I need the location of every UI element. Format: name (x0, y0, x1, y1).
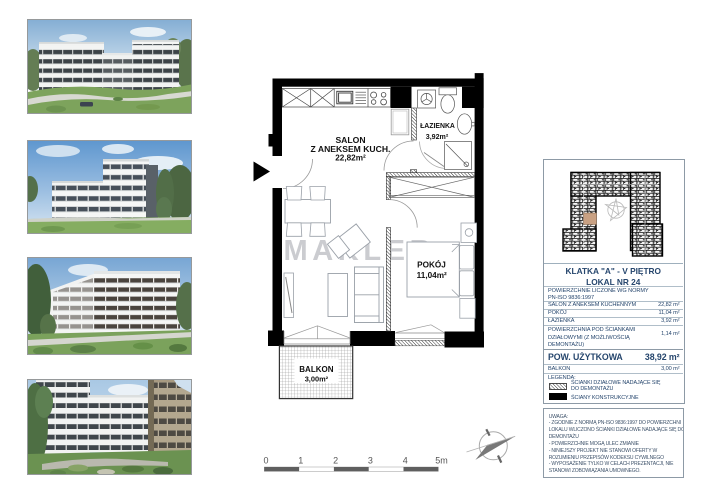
svg-text:POKÓJ: POKÓJ (417, 258, 446, 269)
svg-text:Z ANEKSEM KUCH.: Z ANEKSEM KUCH. (311, 144, 391, 154)
svg-text:11,04m²: 11,04m² (417, 271, 447, 280)
svg-text:3: 3 (368, 456, 373, 466)
svg-text:2: 2 (333, 456, 338, 466)
svg-text:1: 1 (298, 456, 303, 466)
svg-text:4: 4 (403, 456, 408, 466)
svg-text:3,00m²: 3,00m² (305, 375, 329, 384)
svg-text:BALKON: BALKON (299, 365, 333, 374)
svg-text:5m: 5m (435, 456, 448, 466)
svg-text:ŁAZIENKA: ŁAZIENKA (420, 123, 455, 130)
svg-text:3,92m²: 3,92m² (426, 133, 449, 141)
svg-text:22,82m²: 22,82m² (335, 154, 366, 163)
svg-text:0: 0 (263, 456, 268, 466)
